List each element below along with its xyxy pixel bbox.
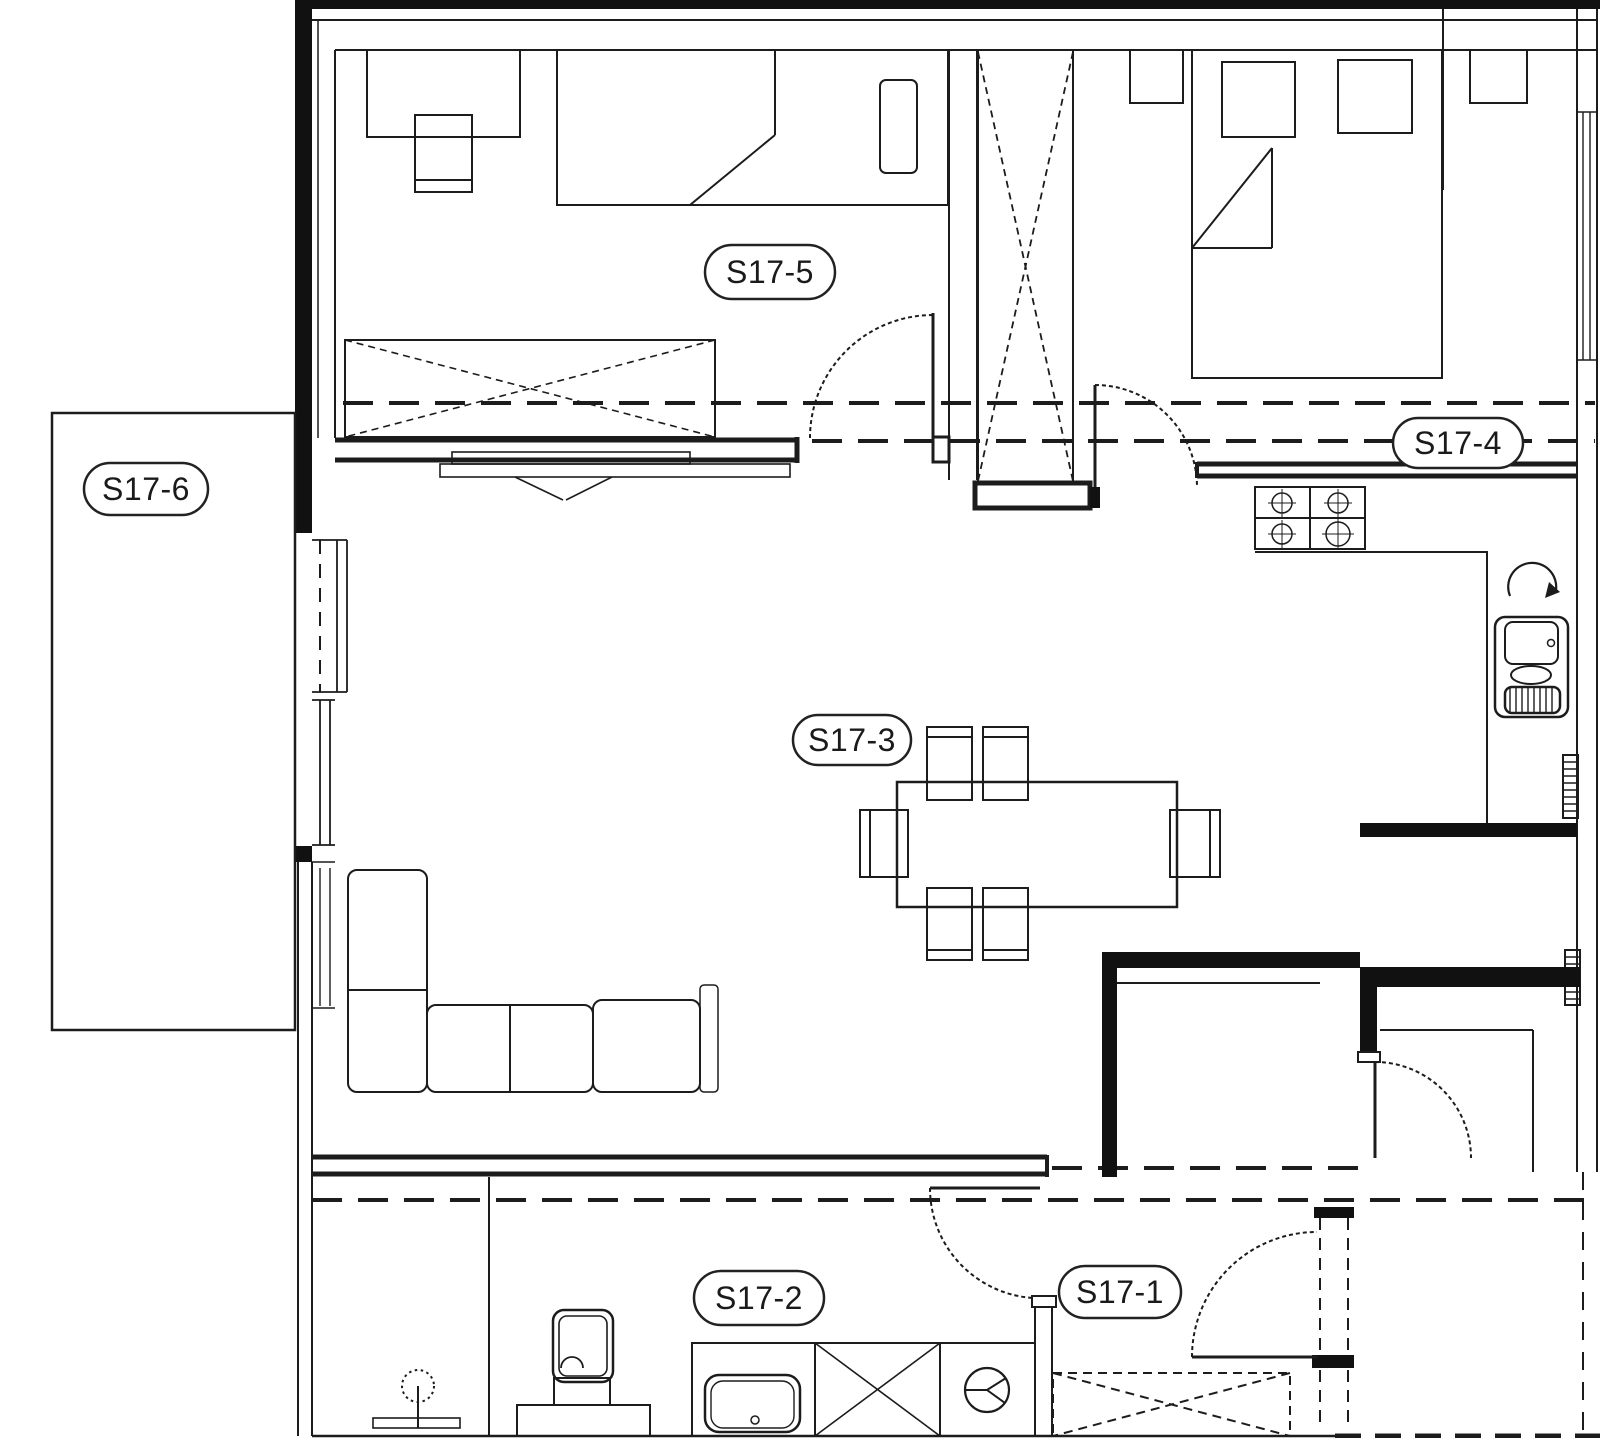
double-bed (1192, 50, 1442, 378)
chair (983, 727, 1028, 800)
bedroom-s17-5 (335, 50, 977, 480)
floor-plan-drawing: S17-5 S17-4 S17-6 S17-3 S17-2 S17-1 (0, 0, 1600, 1438)
entry-walls (1102, 952, 1580, 1177)
wall-left-lower (298, 862, 335, 1436)
nightstand-left (1130, 50, 1183, 103)
wall-bathroom-east (1032, 1296, 1056, 1436)
section-lines (312, 403, 1595, 1200)
room-label-text: S17-6 (102, 471, 190, 507)
entry-door (1375, 1062, 1471, 1158)
chair (983, 888, 1028, 960)
blanket-fold (1192, 148, 1272, 248)
extractor-fan-icon (940, 1343, 1035, 1436)
door-s17-5 (810, 313, 933, 438)
kitchen-counter (1255, 552, 1487, 823)
door-s17-1 (1192, 1232, 1317, 1357)
chair (927, 888, 972, 960)
corner-sofa (348, 870, 718, 1092)
single-bed (557, 50, 948, 205)
room-label-text: S17-1 (1076, 1274, 1164, 1310)
chair (927, 727, 972, 800)
bed-pillow (880, 80, 917, 173)
washbasin-icon (692, 1343, 815, 1436)
wall-top (295, 0, 1600, 9)
duct-shaft (975, 50, 1090, 508)
nightstand-right (1470, 50, 1527, 103)
wall-right (1577, 9, 1597, 1430)
living-room (312, 452, 1220, 1177)
floor-drain-icon (373, 1370, 460, 1428)
room-label-text: S17-2 (715, 1280, 803, 1316)
wall-s17-3-south (312, 1155, 1047, 1177)
chair (860, 810, 908, 877)
room-label-s17-4: S17-4 (1393, 418, 1523, 468)
room-label-s17-1: S17-1 (1059, 1266, 1181, 1318)
wardrobe (345, 340, 715, 437)
washing-machine-icon (815, 1343, 940, 1436)
door-swing-arrow-icon (1508, 563, 1560, 598)
wall-kitchen-south (1360, 823, 1577, 837)
room-label-s17-5: S17-5 (705, 245, 835, 299)
radiator-icon (1563, 755, 1578, 818)
kitchen-sink-icon (1495, 617, 1568, 717)
pillow-right (1338, 60, 1412, 133)
room-label-text: S17-4 (1414, 425, 1502, 461)
hallway-s17-1 (1053, 1207, 1354, 1436)
wall-left-block (295, 846, 312, 862)
toilet-icon (517, 1310, 650, 1436)
opening-dashed (1312, 1207, 1354, 1430)
window-right (1577, 112, 1597, 360)
pillow-left (1222, 62, 1295, 137)
room-label-s17-6: S17-6 (84, 463, 208, 515)
outer-walls (295, 0, 1600, 1436)
dining-set (860, 727, 1220, 960)
wall-s17-4-south (1197, 462, 1577, 478)
hall-wardrobe (1053, 1373, 1290, 1436)
shaft-base (975, 483, 1090, 508)
door-s17-2 (930, 1188, 1040, 1298)
room-label-s17-3: S17-3 (793, 715, 911, 765)
wall-left-upper (295, 9, 312, 533)
kitchen (1255, 487, 1580, 1005)
desk (367, 50, 520, 137)
wall-s17-5-south (335, 437, 949, 463)
balcony-door-window (312, 540, 347, 845)
room-label-s17-2: S17-2 (694, 1271, 824, 1325)
stove-icon (1255, 487, 1365, 550)
room-label-text: S17-3 (808, 722, 896, 758)
floor-plan: S17-5 S17-4 S17-6 S17-3 S17-2 S17-1 (0, 0, 1600, 1438)
room-label-text: S17-5 (726, 254, 814, 290)
